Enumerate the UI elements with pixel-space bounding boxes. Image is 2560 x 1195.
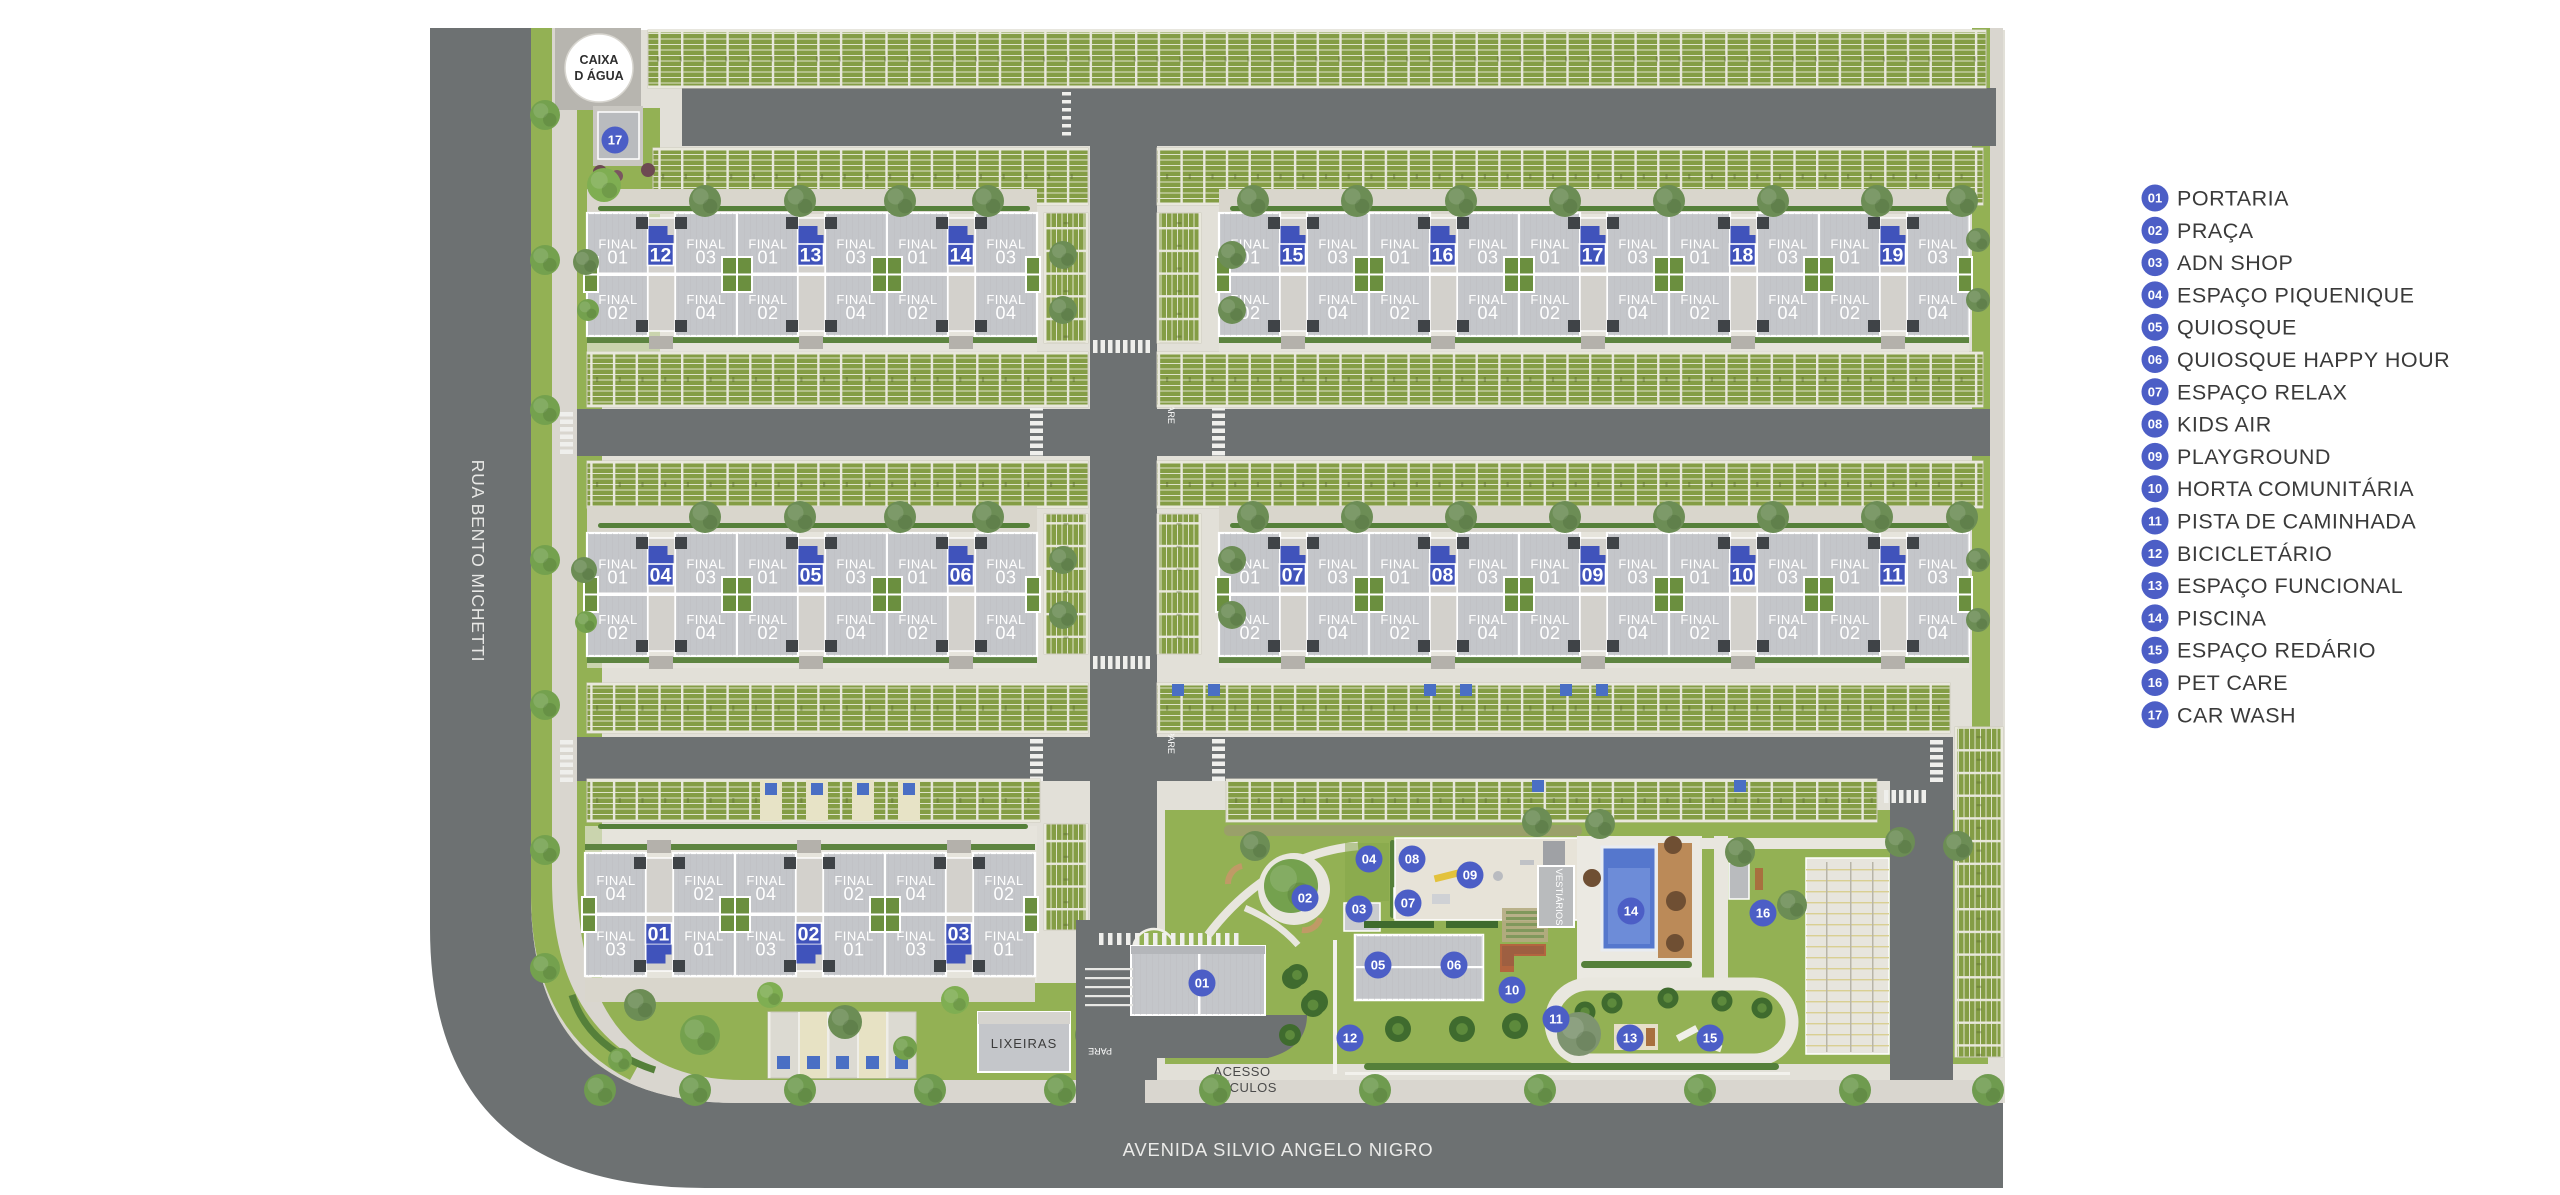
svg-text:07: 07 [1282, 565, 1304, 587]
svg-text:01: 01 [1239, 568, 1260, 588]
svg-text:01: 01 [1389, 248, 1410, 268]
svg-text:01: 01 [1539, 248, 1560, 268]
svg-text:04: 04 [995, 303, 1016, 323]
svg-text:02: 02 [693, 884, 714, 904]
svg-text:12: 12 [2148, 546, 2162, 561]
svg-text:15: 15 [1703, 1031, 1717, 1046]
svg-text:PLAYGROUND: PLAYGROUND [2177, 445, 2331, 469]
svg-text:04: 04 [845, 623, 866, 643]
svg-text:10: 10 [1505, 983, 1519, 998]
svg-text:02: 02 [798, 924, 820, 946]
svg-text:ESPAÇO PIQUENIQUE: ESPAÇO PIQUENIQUE [2177, 283, 2414, 307]
svg-text:02: 02 [1689, 303, 1710, 323]
svg-text:02: 02 [993, 884, 1014, 904]
svg-text:11: 11 [2148, 514, 2162, 529]
svg-text:01: 01 [1689, 248, 1710, 268]
svg-text:04: 04 [1777, 623, 1798, 643]
svg-text:RUA BENTO MICHETTI: RUA BENTO MICHETTI [468, 460, 488, 663]
svg-text:03: 03 [605, 940, 626, 960]
svg-text:11: 11 [1549, 1012, 1563, 1027]
svg-text:04: 04 [695, 623, 716, 643]
svg-text:03: 03 [1927, 568, 1948, 588]
svg-text:01: 01 [2148, 191, 2162, 206]
svg-text:18: 18 [1732, 245, 1754, 267]
svg-text:08: 08 [1432, 565, 1454, 587]
svg-text:HORTA COMUNITÁRIA: HORTA COMUNITÁRIA [2177, 476, 2414, 501]
svg-text:03: 03 [695, 568, 716, 588]
svg-text:19: 19 [1882, 245, 1904, 267]
svg-text:02: 02 [757, 303, 778, 323]
svg-text:14: 14 [2148, 610, 2163, 625]
svg-text:12: 12 [650, 245, 672, 267]
svg-text:03: 03 [1777, 568, 1798, 588]
svg-text:02: 02 [607, 623, 628, 643]
svg-text:10: 10 [1732, 565, 1754, 587]
svg-text:01: 01 [757, 248, 778, 268]
svg-text:16: 16 [2148, 675, 2162, 690]
svg-text:01: 01 [843, 940, 864, 960]
svg-text:QUIOSQUE: QUIOSQUE [2177, 316, 2297, 340]
svg-text:03: 03 [1327, 568, 1348, 588]
svg-text:02: 02 [1839, 303, 1860, 323]
svg-text:04: 04 [605, 884, 626, 904]
svg-text:03: 03 [948, 924, 970, 946]
svg-text:02: 02 [843, 884, 864, 904]
svg-text:13: 13 [1623, 1031, 1637, 1046]
svg-text:VESTIÁRIOS: VESTIÁRIOS [1553, 868, 1564, 925]
svg-text:02: 02 [1298, 891, 1312, 906]
svg-text:04: 04 [1627, 303, 1648, 323]
svg-text:02: 02 [757, 623, 778, 643]
svg-text:03: 03 [905, 940, 926, 960]
svg-text:PORTARIA: PORTARIA [2177, 187, 2289, 211]
svg-text:02: 02 [907, 303, 928, 323]
svg-text:03: 03 [1477, 568, 1498, 588]
svg-text:03: 03 [755, 940, 776, 960]
svg-text:05: 05 [1371, 958, 1385, 973]
svg-text:17: 17 [1582, 245, 1604, 267]
svg-text:07: 07 [1401, 896, 1415, 911]
svg-text:PRAÇA: PRAÇA [2177, 219, 2254, 243]
svg-text:04: 04 [1627, 623, 1648, 643]
svg-text:07: 07 [2148, 384, 2162, 399]
svg-text:04: 04 [755, 884, 776, 904]
svg-text:02: 02 [907, 623, 928, 643]
svg-text:04: 04 [905, 884, 926, 904]
svg-text:03: 03 [995, 568, 1016, 588]
svg-text:PARE: PARE [1088, 1046, 1112, 1056]
svg-text:06: 06 [950, 565, 972, 587]
svg-text:08: 08 [1405, 852, 1419, 867]
svg-text:17: 17 [2148, 707, 2162, 722]
svg-text:04: 04 [1777, 303, 1798, 323]
svg-text:01: 01 [1195, 976, 1209, 991]
svg-text:01: 01 [1839, 568, 1860, 588]
svg-text:03: 03 [845, 248, 866, 268]
svg-text:04: 04 [1927, 623, 1948, 643]
svg-text:14: 14 [1624, 904, 1639, 919]
svg-text:04: 04 [845, 303, 866, 323]
svg-text:15: 15 [1282, 245, 1304, 267]
svg-text:02: 02 [1839, 623, 1860, 643]
svg-text:02: 02 [607, 303, 628, 323]
svg-text:ESPAÇO RELAX: ESPAÇO RELAX [2177, 380, 2348, 404]
svg-text:01: 01 [607, 248, 628, 268]
svg-text:03: 03 [1927, 248, 1948, 268]
svg-text:04: 04 [1477, 303, 1498, 323]
svg-text:04: 04 [1327, 623, 1348, 643]
svg-text:BICICLETÁRIO: BICICLETÁRIO [2177, 541, 2332, 566]
svg-text:09: 09 [1463, 868, 1477, 883]
svg-text:02: 02 [1389, 303, 1410, 323]
svg-text:02: 02 [1239, 623, 1260, 643]
svg-text:06: 06 [2148, 352, 2162, 367]
svg-text:02: 02 [1539, 623, 1560, 643]
svg-text:01: 01 [648, 924, 670, 946]
svg-text:01: 01 [907, 568, 928, 588]
svg-text:03: 03 [845, 568, 866, 588]
svg-text:03: 03 [1777, 248, 1798, 268]
svg-text:05: 05 [2148, 320, 2162, 335]
svg-text:02: 02 [1389, 623, 1410, 643]
svg-text:KIDS AIR: KIDS AIR [2177, 413, 2272, 437]
svg-text:01: 01 [693, 940, 714, 960]
svg-text:04: 04 [995, 623, 1016, 643]
svg-text:D ÁGUA: D ÁGUA [574, 68, 623, 83]
svg-text:17: 17 [608, 133, 622, 148]
svg-text:03: 03 [1352, 902, 1366, 917]
svg-text:01: 01 [1839, 248, 1860, 268]
svg-text:01: 01 [607, 568, 628, 588]
svg-text:04: 04 [1477, 623, 1498, 643]
svg-text:04: 04 [1927, 303, 1948, 323]
svg-text:13: 13 [2148, 578, 2162, 593]
svg-text:01: 01 [907, 248, 928, 268]
svg-text:01: 01 [993, 940, 1014, 960]
svg-text:05: 05 [800, 565, 822, 587]
svg-text:ADN SHOP: ADN SHOP [2177, 251, 2293, 275]
svg-text:16: 16 [1756, 906, 1770, 921]
svg-text:11: 11 [1882, 565, 1903, 587]
svg-text:AVENIDA SILVIO ANGELO NIGRO: AVENIDA SILVIO ANGELO NIGRO [1123, 1139, 1434, 1160]
svg-text:09: 09 [2148, 449, 2162, 464]
svg-text:03: 03 [1627, 568, 1648, 588]
svg-text:CAIXA: CAIXA [580, 53, 619, 67]
svg-text:03: 03 [1327, 248, 1348, 268]
svg-text:10: 10 [2148, 481, 2162, 496]
svg-text:16: 16 [1432, 245, 1454, 267]
svg-text:ESPAÇO FUNCIONAL: ESPAÇO FUNCIONAL [2177, 574, 2403, 598]
svg-text:CAR WASH: CAR WASH [2177, 703, 2296, 727]
svg-text:12: 12 [1343, 1031, 1357, 1046]
svg-text:04: 04 [2148, 287, 2163, 302]
svg-text:14: 14 [950, 245, 972, 267]
svg-text:03: 03 [695, 248, 716, 268]
svg-text:03: 03 [1477, 248, 1498, 268]
svg-text:02: 02 [2148, 223, 2162, 238]
svg-text:15: 15 [2148, 643, 2162, 658]
svg-text:04: 04 [695, 303, 716, 323]
svg-text:04: 04 [1327, 303, 1348, 323]
svg-text:PARE: PARE [1166, 730, 1176, 754]
svg-text:08: 08 [2148, 417, 2162, 432]
svg-text:PISTA DE CAMINHADA: PISTA DE CAMINHADA [2177, 510, 2416, 534]
svg-text:03: 03 [995, 248, 1016, 268]
svg-text:PISCINA: PISCINA [2177, 606, 2267, 630]
svg-text:03: 03 [2148, 255, 2162, 270]
svg-text:04: 04 [1362, 852, 1377, 867]
svg-text:13: 13 [800, 245, 822, 267]
svg-text:02: 02 [1539, 303, 1560, 323]
svg-text:04: 04 [650, 565, 672, 587]
svg-text:01: 01 [757, 568, 778, 588]
svg-text:01: 01 [1539, 568, 1560, 588]
svg-text:PET CARE: PET CARE [2177, 671, 2288, 695]
svg-text:03: 03 [1627, 248, 1648, 268]
svg-text:LIXEIRAS: LIXEIRAS [991, 1036, 1058, 1051]
svg-text:09: 09 [1582, 565, 1604, 587]
svg-text:ESPAÇO REDÁRIO: ESPAÇO REDÁRIO [2177, 638, 2376, 663]
svg-text:QUIOSQUE HAPPY HOUR: QUIOSQUE HAPPY HOUR [2177, 348, 2450, 372]
svg-text:01: 01 [1689, 568, 1710, 588]
svg-text:01: 01 [1389, 568, 1410, 588]
svg-text:02: 02 [1689, 623, 1710, 643]
svg-text:06: 06 [1447, 958, 1461, 973]
